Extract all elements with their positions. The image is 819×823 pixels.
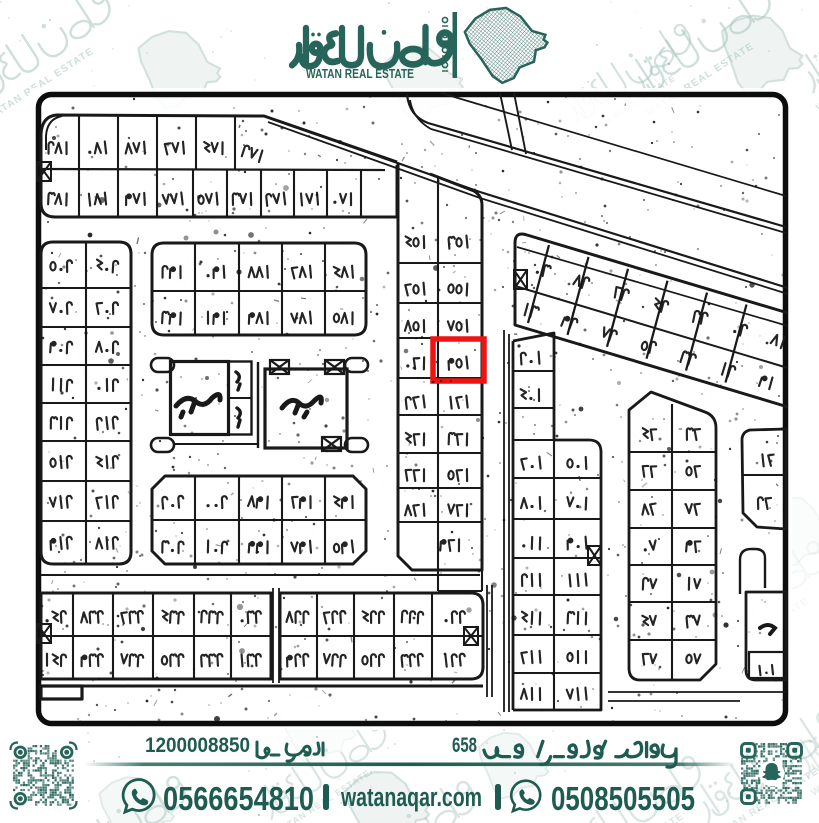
svg-text:WATAN REAL ESTATE: WATAN REAL ESTATE (306, 67, 414, 81)
svg-text:658: 658 (452, 734, 477, 757)
svg-text:0566654810: 0566654810 (163, 780, 314, 817)
svg-text:watanaqar.com: watanaqar.com (340, 784, 482, 812)
svg-text:1200008850: 1200008850 (145, 734, 250, 757)
svg-text:0508505505: 0508505505 (551, 780, 695, 817)
